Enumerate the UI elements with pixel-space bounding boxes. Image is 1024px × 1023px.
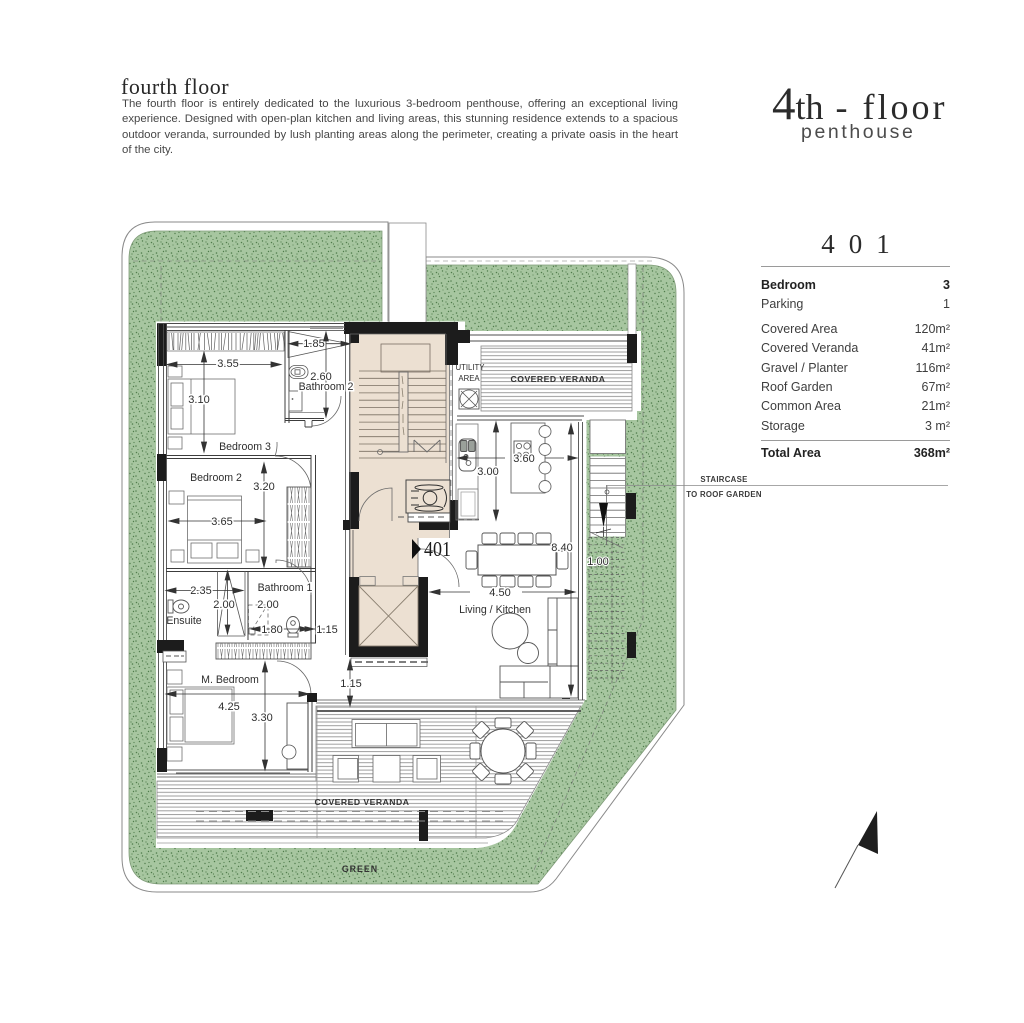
svg-text:1.80: 1.80	[261, 624, 282, 636]
svg-text:TO ROOF GARDEN: TO ROOF GARDEN	[686, 490, 762, 499]
svg-text:4.50: 4.50	[489, 587, 510, 599]
svg-text:2.00: 2.00	[213, 599, 234, 611]
svg-text:STAIRCASE: STAIRCASE	[700, 475, 747, 484]
svg-text:1.00: 1.00	[587, 556, 608, 568]
svg-text:401: 401	[424, 537, 451, 561]
svg-text:COVERED VERANDA: COVERED VERANDA	[511, 374, 606, 384]
svg-text:GREEN: GREEN	[342, 864, 378, 874]
svg-text:Bathroom 1: Bathroom 1	[258, 582, 313, 594]
svg-text:3.00: 3.00	[477, 466, 498, 478]
svg-text:2.00: 2.00	[257, 599, 278, 611]
svg-text:3.60: 3.60	[513, 453, 534, 465]
svg-text:3.65: 3.65	[211, 516, 232, 528]
svg-text:Bedroom 2: Bedroom 2	[190, 472, 242, 484]
svg-text:AREA: AREA	[458, 374, 480, 383]
svg-text:1.15: 1.15	[316, 624, 337, 636]
svg-text:3.30: 3.30	[251, 712, 272, 724]
svg-text:1.15: 1.15	[340, 678, 361, 690]
svg-text:UTILITY: UTILITY	[455, 363, 485, 372]
svg-text:Ensuite: Ensuite	[166, 615, 201, 627]
svg-text:Bathroom 2: Bathroom 2	[299, 381, 354, 393]
svg-text:COVERED VERANDA: COVERED VERANDA	[315, 797, 410, 807]
svg-text:8.40: 8.40	[551, 542, 572, 554]
svg-text:3.10: 3.10	[188, 394, 209, 406]
svg-text:2.35: 2.35	[190, 585, 211, 597]
svg-text:1.85: 1.85	[303, 338, 324, 350]
svg-text:Living / Kitchen: Living / Kitchen	[459, 604, 531, 616]
svg-text:Bedroom 3: Bedroom 3	[219, 441, 271, 453]
svg-text:4.25: 4.25	[218, 701, 239, 713]
svg-text:3.20: 3.20	[253, 481, 274, 493]
svg-text:3.55: 3.55	[217, 358, 238, 370]
svg-text:M. Bedroom: M. Bedroom	[201, 674, 259, 686]
